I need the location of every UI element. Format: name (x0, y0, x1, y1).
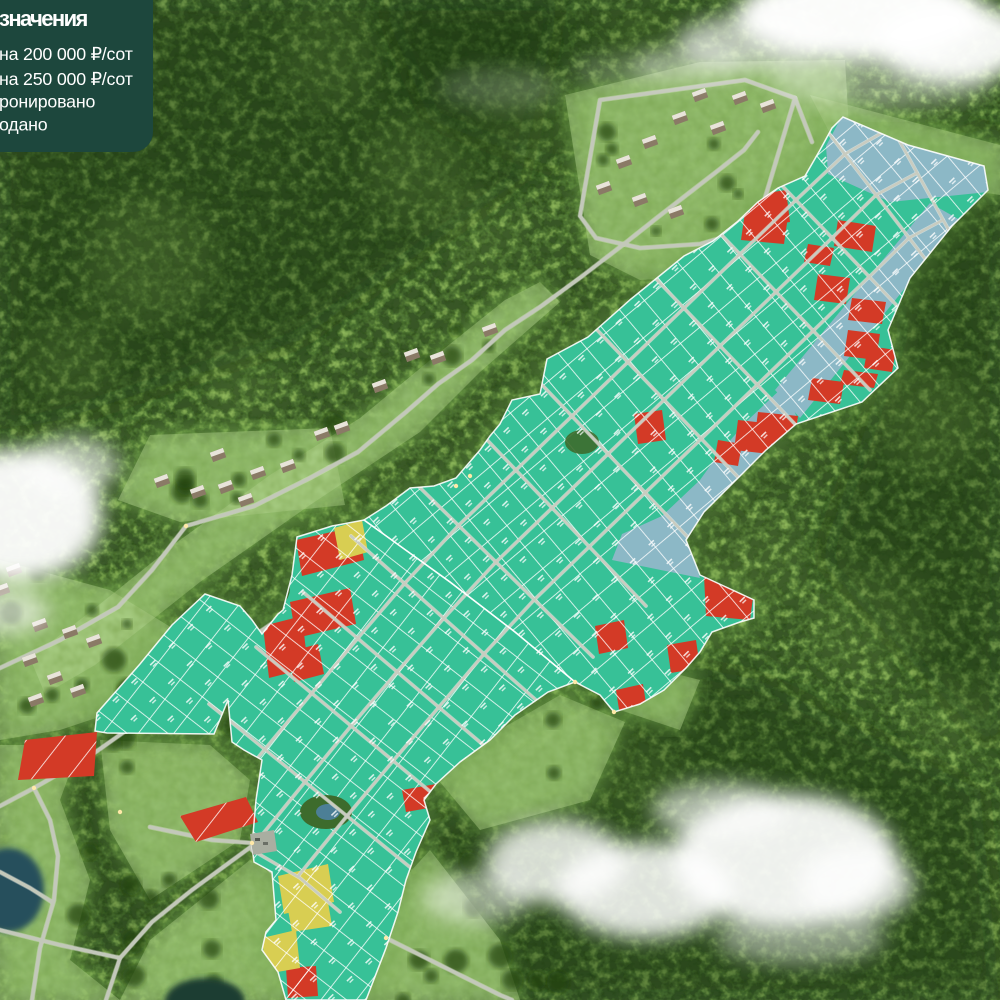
svg-text:на 250 000 ₽/сот: на 250 000 ₽/сот (0, 69, 133, 89)
svg-text:ронировано: ронировано (0, 92, 95, 112)
svg-text:на 200 000 ₽/сот: на 200 000 ₽/сот (0, 44, 133, 64)
svg-text:одано: одано (0, 115, 48, 135)
svg-text:значения: значения (0, 6, 88, 31)
